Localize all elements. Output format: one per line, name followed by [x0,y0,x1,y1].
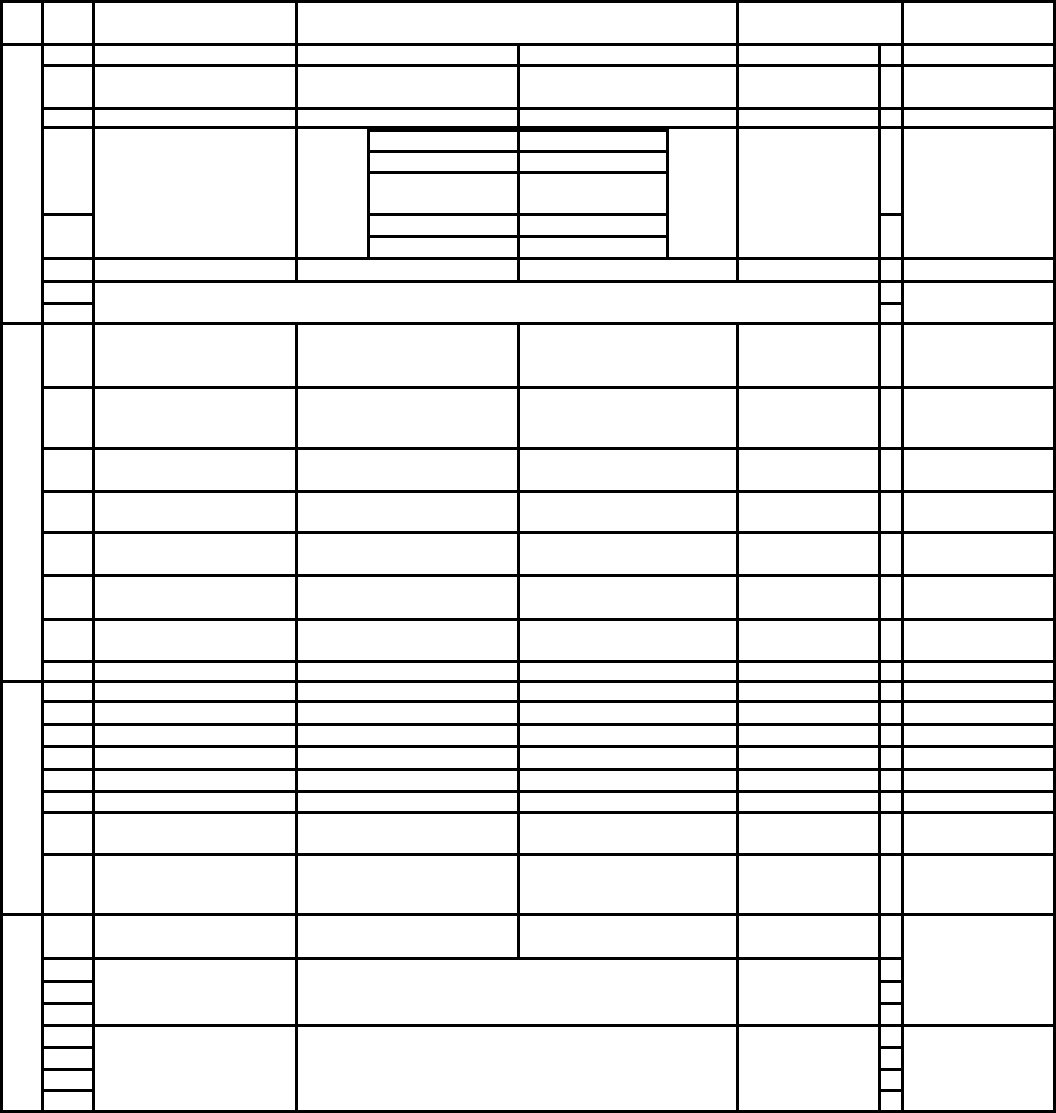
grid-line-horizontal [41,700,1056,703]
grid-line-horizontal [367,235,669,238]
grid-line-horizontal [0,43,1056,46]
grid-line-horizontal [41,957,904,960]
grid-line-vertical [736,322,739,1113]
grid-line-horizontal [878,980,904,983]
grid-line-horizontal [41,723,1056,726]
grid-line-horizontal [367,129,669,132]
grid-line-horizontal [41,980,95,983]
grid-line-vertical [517,322,520,960]
grid-line-horizontal [0,322,1056,325]
grid-line-horizontal [41,1089,95,1092]
grid-line-horizontal [878,302,904,305]
grid-line-horizontal [878,1068,904,1071]
grid-line-horizontal [41,280,1056,283]
grid-line-vertical [878,43,881,1113]
grid-line-horizontal [41,213,95,216]
grid-line-horizontal [41,853,1056,856]
grid-line-horizontal [41,1002,95,1005]
grid-line-horizontal [41,531,1056,534]
grid-line-horizontal [41,745,1056,748]
grid-line-horizontal [41,574,1056,577]
grid-line-vertical [666,129,669,260]
grid-line-horizontal [41,768,1056,771]
grid-line-vertical [517,43,520,283]
grid-line-horizontal [41,1046,95,1049]
grid-line-horizontal [878,1002,904,1005]
grid-line-horizontal [367,171,669,174]
grid-line-horizontal [41,618,1056,621]
grid-line-horizontal [41,660,1056,663]
table-grid-lines [0,0,1056,1113]
grid-line-horizontal [41,1024,1056,1027]
grid-line-vertical [367,129,370,260]
grid-line-horizontal [878,1089,904,1092]
grid-line-horizontal [878,1046,904,1049]
grid-line-vertical [92,0,95,1113]
grid-line-horizontal [41,107,1056,110]
grid-line-vertical [0,0,3,1113]
grid-line-horizontal [41,64,1056,67]
grid-line-vertical [901,0,904,1113]
grid-line-horizontal [41,447,1056,450]
grid-line-horizontal [41,386,1056,389]
grid-line-vertical [295,322,298,1113]
grid-line-horizontal [41,811,1056,814]
grid-line-horizontal [0,913,1056,916]
blank-form-table [0,0,1056,1113]
grid-line-horizontal [41,302,95,305]
grid-line-horizontal [41,257,1056,260]
grid-line-horizontal [0,0,1056,3]
grid-line-vertical [41,0,44,1113]
grid-line-horizontal [0,680,1056,683]
grid-line-horizontal [41,1068,95,1071]
grid-line-horizontal [878,213,904,216]
grid-line-horizontal [41,490,1056,493]
grid-line-horizontal [367,213,669,216]
grid-line-horizontal [41,790,1056,793]
grid-line-horizontal [367,150,669,153]
